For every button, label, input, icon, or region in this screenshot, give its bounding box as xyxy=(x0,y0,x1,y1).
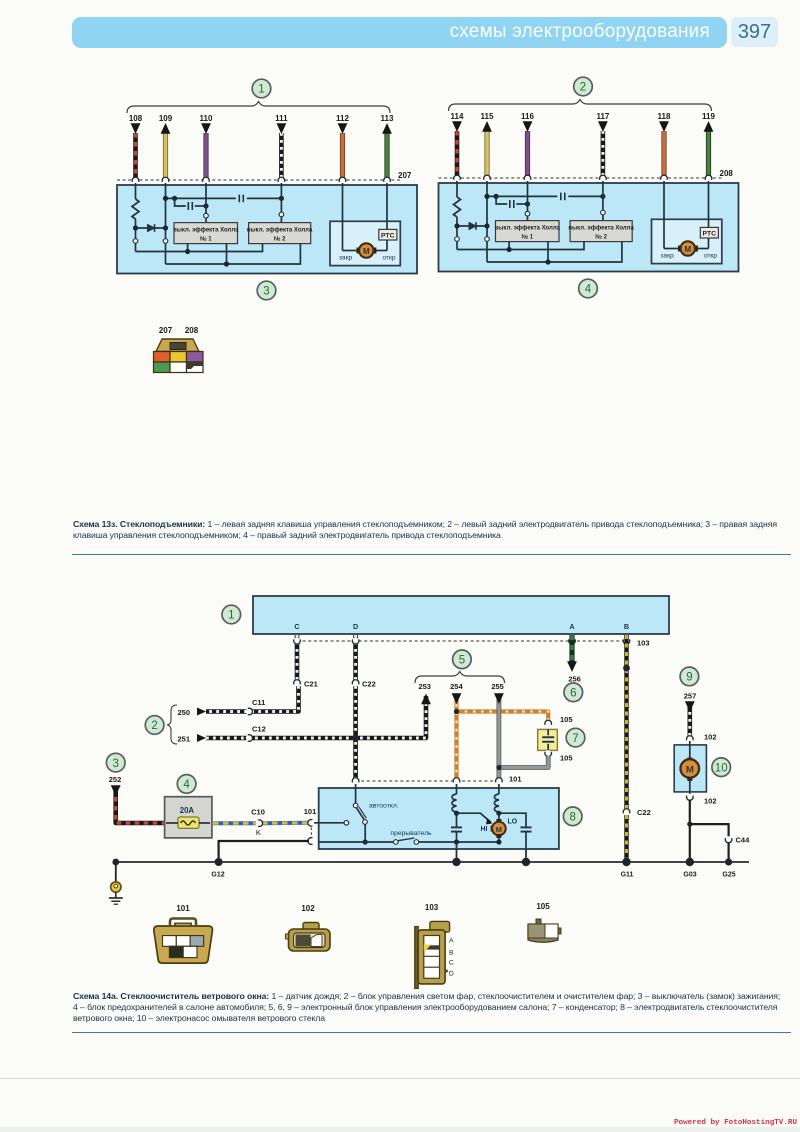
svg-text:выкл. эффекта Холла: выкл. эффекта Холла xyxy=(247,226,313,233)
svg-text:253: 253 xyxy=(418,682,431,691)
svg-text:выкл. эффекта Холла: выкл. эффекта Холла xyxy=(568,224,634,231)
svg-text:101: 101 xyxy=(509,775,522,784)
svg-text:B: B xyxy=(624,622,629,631)
svg-text:G03: G03 xyxy=(683,872,696,879)
svg-text:256: 256 xyxy=(568,675,581,684)
svg-text:3: 3 xyxy=(112,758,118,770)
svg-text:C10: C10 xyxy=(251,808,265,817)
svg-text:автооткл.: автооткл. xyxy=(369,803,399,810)
svg-text:№ 2: № 2 xyxy=(595,233,607,240)
svg-text:закр: закр xyxy=(660,252,674,259)
svg-text:PTC: PTC xyxy=(381,233,395,240)
svg-text:C11: C11 xyxy=(252,698,265,707)
svg-text:1: 1 xyxy=(228,610,234,622)
svg-text:116: 116 xyxy=(521,112,534,121)
svg-text:208: 208 xyxy=(720,169,734,178)
svg-text:D: D xyxy=(449,971,454,978)
svg-text:2: 2 xyxy=(151,720,157,732)
svg-text:8: 8 xyxy=(569,812,575,824)
svg-text:M: M xyxy=(496,825,502,834)
svg-text:255: 255 xyxy=(491,682,504,691)
svg-text:113: 113 xyxy=(381,114,394,123)
svg-text:108: 108 xyxy=(129,114,143,123)
svg-text:откр: откр xyxy=(382,254,395,261)
svg-text:LO: LO xyxy=(508,818,518,825)
svg-text:C: C xyxy=(449,959,454,966)
svg-text:251: 251 xyxy=(177,735,190,744)
svg-text:C22: C22 xyxy=(362,680,376,689)
svg-text:102: 102 xyxy=(704,733,717,742)
svg-text:№ 1: № 1 xyxy=(521,233,533,240)
svg-text:C44: C44 xyxy=(736,836,751,845)
svg-text:7: 7 xyxy=(572,733,578,745)
svg-text:101: 101 xyxy=(304,807,317,816)
svg-text:111: 111 xyxy=(275,114,288,123)
svg-text:C22: C22 xyxy=(637,808,651,817)
svg-text:101: 101 xyxy=(176,904,190,913)
svg-text:выкл. эффекта Холла: выкл. эффекта Холла xyxy=(173,226,239,233)
svg-text:G12: G12 xyxy=(211,872,224,879)
svg-text:№ 1: № 1 xyxy=(200,235,212,242)
svg-text:M: M xyxy=(686,765,694,776)
svg-text:102: 102 xyxy=(301,904,315,913)
svg-text:112: 112 xyxy=(336,114,349,123)
svg-text:M: M xyxy=(684,245,691,254)
svg-text:105: 105 xyxy=(560,715,573,724)
svg-text:250: 250 xyxy=(177,708,190,717)
svg-text:103: 103 xyxy=(425,903,439,912)
svg-text:C21: C21 xyxy=(304,680,318,689)
svg-text:4: 4 xyxy=(183,779,190,791)
svg-text:4: 4 xyxy=(585,284,592,296)
svg-text:207: 207 xyxy=(159,326,173,335)
svg-text:109: 109 xyxy=(159,114,173,123)
svg-text:прерыватель: прерыватель xyxy=(390,830,432,837)
svg-text:105: 105 xyxy=(560,754,573,763)
svg-text:A: A xyxy=(569,622,574,631)
svg-text:119: 119 xyxy=(702,112,715,121)
svg-text:252: 252 xyxy=(109,775,122,784)
svg-text:HI: HI xyxy=(481,826,488,833)
svg-text:102: 102 xyxy=(704,797,717,806)
svg-text:D: D xyxy=(353,622,358,631)
svg-text:208: 208 xyxy=(185,326,199,335)
svg-text:M: M xyxy=(363,247,370,256)
svg-text:10: 10 xyxy=(715,762,728,774)
svg-text:G25: G25 xyxy=(722,872,735,879)
svg-text:№ 2: № 2 xyxy=(274,235,286,242)
svg-text:118: 118 xyxy=(658,112,671,121)
svg-text:2: 2 xyxy=(580,82,586,94)
svg-text:A: A xyxy=(449,937,454,944)
svg-text:117: 117 xyxy=(596,112,609,121)
svg-text:6: 6 xyxy=(570,688,576,700)
svg-text:207: 207 xyxy=(398,171,412,180)
svg-text:выкл. эффекта Холла: выкл. эффекта Холла xyxy=(495,224,561,231)
svg-text:115: 115 xyxy=(481,112,494,121)
svg-text:5: 5 xyxy=(459,655,465,667)
svg-text:20A: 20A xyxy=(180,806,195,815)
svg-text:3: 3 xyxy=(263,286,269,298)
svg-text:C: C xyxy=(294,622,299,631)
svg-text:откр: откр xyxy=(704,252,717,259)
svg-text:B: B xyxy=(449,949,454,956)
svg-text:C12: C12 xyxy=(252,725,266,734)
svg-text:114: 114 xyxy=(451,112,464,121)
svg-text:K: K xyxy=(256,828,261,837)
svg-text:закр: закр xyxy=(339,254,353,261)
svg-text:105: 105 xyxy=(536,902,550,911)
svg-text:9: 9 xyxy=(686,672,692,684)
svg-text:103: 103 xyxy=(637,639,650,648)
svg-text:257: 257 xyxy=(684,692,697,701)
svg-text:1: 1 xyxy=(258,84,264,96)
svg-text:PTC: PTC xyxy=(702,231,716,238)
svg-text:110: 110 xyxy=(200,114,213,123)
svg-text:254: 254 xyxy=(450,682,463,691)
svg-text:G11: G11 xyxy=(621,872,634,879)
